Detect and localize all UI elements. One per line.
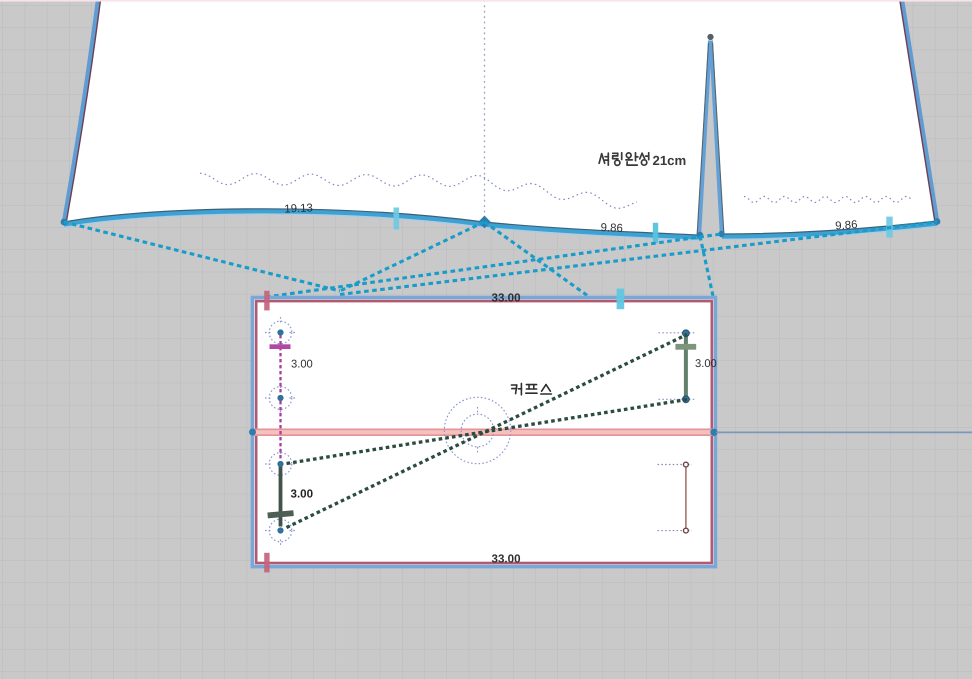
svg-text:33.00: 33.00 xyxy=(491,292,520,305)
svg-text:19.13: 19.13 xyxy=(284,202,313,215)
svg-text:21cm: 21cm xyxy=(652,153,686,168)
svg-text:3.00: 3.00 xyxy=(290,488,313,501)
svg-text:33.00: 33.00 xyxy=(491,553,520,566)
svg-text:3.00: 3.00 xyxy=(291,359,313,371)
svg-text:9.86: 9.86 xyxy=(600,222,623,235)
svg-text:9.86: 9.86 xyxy=(835,219,858,233)
svg-text:3.00: 3.00 xyxy=(695,358,717,370)
